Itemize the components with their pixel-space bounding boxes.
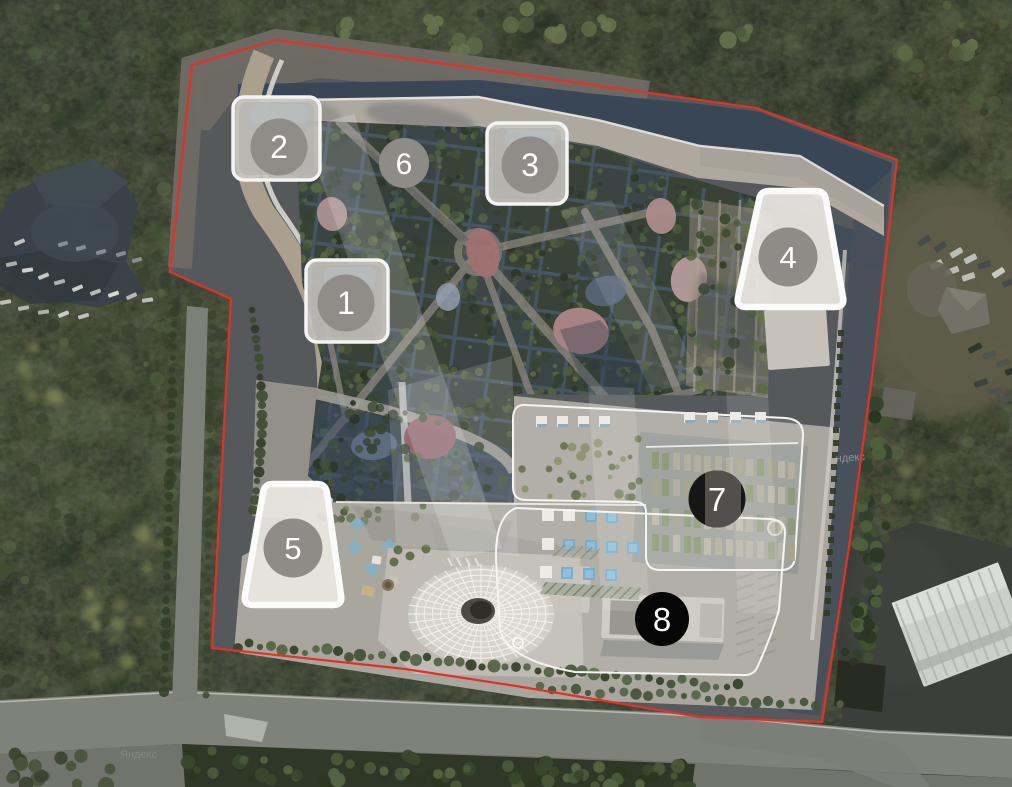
svg-text:4: 4 [779,240,796,275]
svg-text:2: 2 [270,129,288,165]
svg-text:3: 3 [521,147,539,183]
svg-text:Яндекс: Яндекс [120,749,157,761]
svg-text:5: 5 [284,531,301,566]
svg-text:6: 6 [396,148,413,181]
svg-text:1: 1 [337,285,355,321]
svg-text:7: 7 [708,481,726,518]
svg-text:8: 8 [653,601,671,638]
